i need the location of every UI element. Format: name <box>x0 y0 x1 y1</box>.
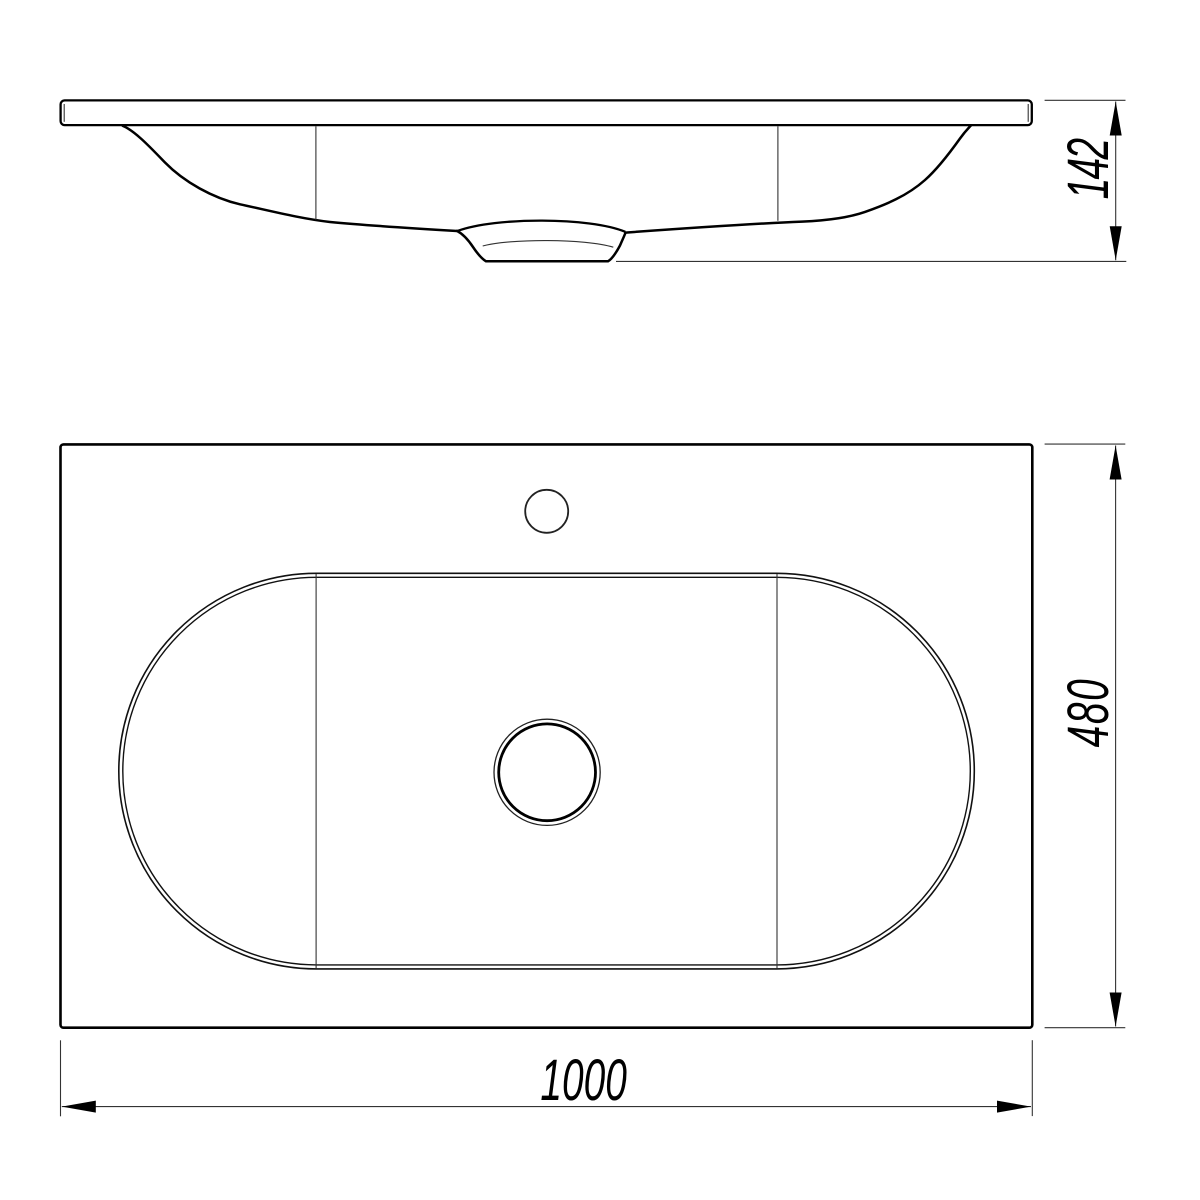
svg-text:480: 480 <box>1056 678 1121 748</box>
svg-text:1000: 1000 <box>540 1048 627 1113</box>
svg-text:142: 142 <box>1056 138 1121 199</box>
